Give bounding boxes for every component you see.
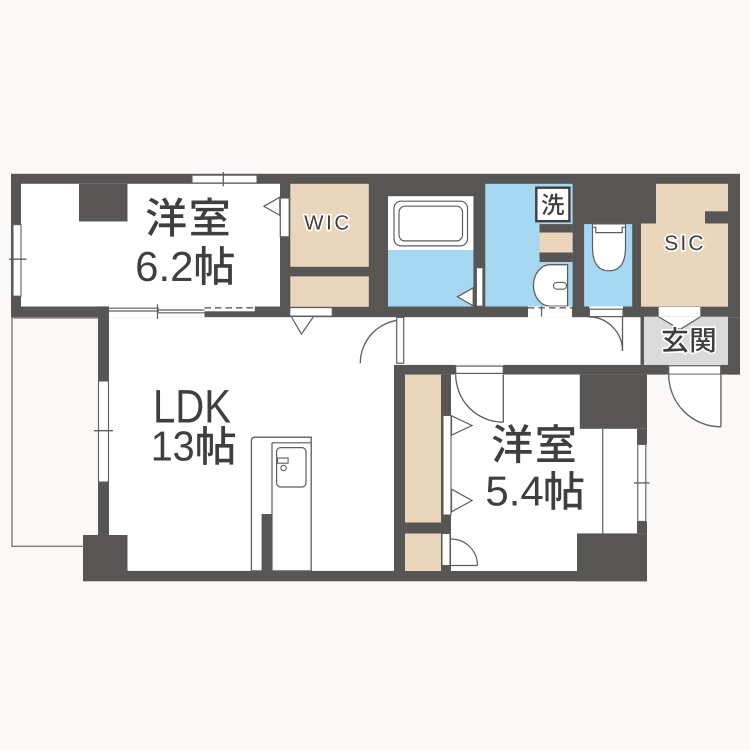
svg-text:6.2: 6.2	[135, 243, 193, 290]
svg-text:13: 13	[151, 423, 195, 470]
svg-text:WIC: WIC	[304, 212, 352, 235]
svg-text:SIC: SIC	[664, 232, 706, 255]
svg-text:5.4: 5.4	[485, 468, 543, 515]
